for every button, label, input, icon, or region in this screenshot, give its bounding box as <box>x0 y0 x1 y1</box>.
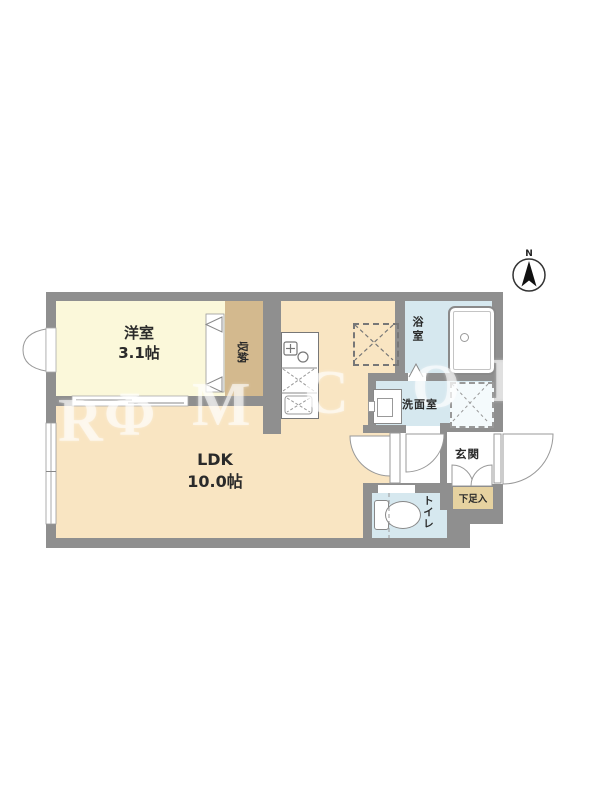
closet-text: 収納 <box>236 341 249 363</box>
watermark-letter: Φ <box>104 384 155 446</box>
washbasin-bowl <box>377 398 393 417</box>
wall-left-lower <box>46 524 56 538</box>
north-arrow-icon <box>522 261 537 287</box>
entrance-door-opening <box>492 433 503 484</box>
wall-bottom-right-step <box>447 524 470 538</box>
compass-circle <box>513 259 545 291</box>
toilet-bowl <box>385 501 421 529</box>
wall-left-mid <box>46 372 56 423</box>
entrance-door-arc <box>503 434 553 484</box>
shoe-cabinet-box: 下足入 <box>452 486 494 510</box>
watermark-letter: C <box>304 362 349 424</box>
bedroom-name: 洋室 <box>79 323 199 343</box>
bath-label: 浴室 <box>409 316 425 368</box>
washroom-label: 洗面室 <box>402 396 438 412</box>
wall-bottom <box>46 538 470 548</box>
refrigerator-space <box>353 323 399 366</box>
entrance-label: 玄関 <box>455 446 480 462</box>
watermark-letter: M <box>192 374 251 436</box>
ldk-floor-patch <box>363 433 390 483</box>
toilet-label: トイレ <box>421 495 436 537</box>
ldk-label: LDK 10.0帖 <box>150 449 280 492</box>
bedroom-size: 3.1帖 <box>79 343 199 363</box>
shoe-cabinet-label: 下足入 <box>459 491 488 505</box>
floor-plan-page: 下足入 N <box>0 0 600 800</box>
washbasin-faucet <box>368 401 375 412</box>
bedroom-label: 洋室 3.1帖 <box>79 323 199 364</box>
casement-window-arc <box>23 329 46 371</box>
closet-label: 収納 <box>237 330 251 374</box>
wall-hall-top <box>363 425 406 433</box>
watermark-letter: D <box>490 350 535 412</box>
bedroom-window-opening <box>46 328 56 372</box>
wall-closet-column <box>263 301 281 434</box>
compass: N <box>513 249 545 291</box>
ldk-name: LDK <box>150 449 280 471</box>
ldk-size: 10.0帖 <box>150 471 280 493</box>
wall-left-upper <box>46 301 56 328</box>
toilet-door-opening <box>378 485 415 493</box>
bathtub-drain <box>460 333 469 342</box>
wall-top <box>46 292 503 301</box>
wall-entrance-left <box>440 432 447 510</box>
compass-north-label: N <box>525 249 533 259</box>
hallway-floor <box>390 433 440 483</box>
watermark-letter: R <box>58 390 103 452</box>
ldk-window-opening <box>46 423 56 524</box>
